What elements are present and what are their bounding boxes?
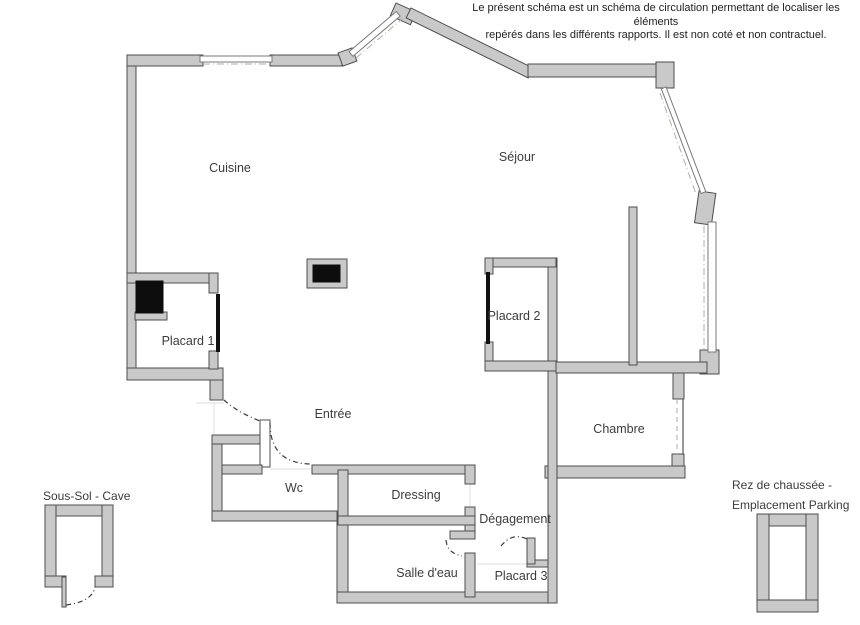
room-label-placard2: Placard 2	[488, 309, 541, 323]
door-arc-entrance	[224, 400, 260, 421]
wall	[485, 258, 556, 267]
window	[661, 87, 705, 193]
wall	[212, 511, 345, 521]
windows	[200, 12, 716, 455]
label-parking-line1: Rez de chaussée -	[732, 478, 832, 492]
wall	[485, 361, 556, 371]
wall	[629, 207, 637, 365]
disclaimer-note: Le présent schéma est un schéma de circu…	[452, 2, 860, 43]
window	[349, 12, 400, 57]
window	[200, 56, 272, 62]
wall	[260, 420, 270, 467]
wall	[127, 55, 203, 66]
cave-plan	[45, 505, 113, 607]
label-parking-line2: Emplacement Parking	[732, 498, 849, 512]
window	[708, 222, 716, 352]
room-label-cuisine: Cuisine	[209, 161, 251, 175]
wall	[465, 553, 475, 597]
wall	[212, 435, 222, 521]
wall	[209, 273, 218, 293]
disclaimer-line1: Le présent schéma est un schéma de circu…	[452, 2, 860, 29]
room-label-chambre: Chambre	[593, 422, 644, 436]
wall	[222, 465, 262, 474]
duct-black-box	[136, 281, 163, 313]
wall	[656, 62, 674, 88]
room-label-wc: Wc	[285, 481, 303, 495]
ducts	[136, 259, 347, 313]
door-arc-placard3	[501, 537, 527, 546]
room-label-degagement: Dégagement	[479, 512, 551, 526]
door-arc-wc	[270, 423, 312, 464]
wall	[95, 576, 113, 587]
wall	[209, 351, 218, 369]
sliding-door-placard1	[216, 294, 220, 352]
threshold-lines	[196, 403, 527, 564]
duct-black-box	[313, 265, 340, 282]
room-label-placard3: Placard 3	[495, 569, 548, 583]
door-arc-salle-deau	[446, 540, 462, 556]
parking-plan	[757, 514, 818, 612]
wall	[102, 505, 113, 587]
wall	[127, 55, 136, 380]
wall	[673, 370, 684, 399]
room-label-placard1: Placard 1	[162, 334, 215, 348]
room-label-entree: Entrée	[315, 407, 352, 421]
wall	[450, 531, 475, 539]
wall	[210, 380, 223, 400]
wall	[312, 465, 475, 474]
wall	[527, 538, 535, 564]
floorplan-drawing	[0, 0, 860, 625]
wall	[212, 435, 262, 444]
label-cave: Sous-Sol - Cave	[43, 489, 130, 503]
wall	[545, 466, 685, 478]
room-label-dressing: Dressing	[391, 488, 440, 502]
wall	[695, 191, 716, 225]
door-arc-cave	[66, 587, 95, 605]
room-label-sejour: Séjour	[499, 150, 535, 164]
wall	[338, 470, 348, 518]
cave-door-leaf	[62, 577, 66, 607]
wall	[757, 514, 769, 612]
wall	[528, 64, 662, 77]
wall	[45, 505, 56, 587]
window-axis-dash	[660, 93, 696, 194]
window-axis-dash	[356, 19, 402, 58]
wall	[485, 258, 493, 274]
wall	[127, 368, 223, 380]
wall	[337, 592, 557, 603]
wall	[757, 600, 818, 612]
wall	[338, 516, 475, 525]
sliding-door-placard2	[486, 272, 490, 344]
wall	[270, 55, 342, 66]
wall	[465, 465, 475, 484]
disclaimer-line2: repérés dans les différents rapports. Il…	[452, 29, 860, 43]
interior-walls	[127, 207, 707, 597]
floorplan-page: Le présent schéma est un schéma de circu…	[0, 0, 860, 625]
room-label-salle-deau: Salle d'eau	[396, 566, 457, 580]
wall	[806, 514, 818, 612]
wall	[548, 258, 557, 603]
